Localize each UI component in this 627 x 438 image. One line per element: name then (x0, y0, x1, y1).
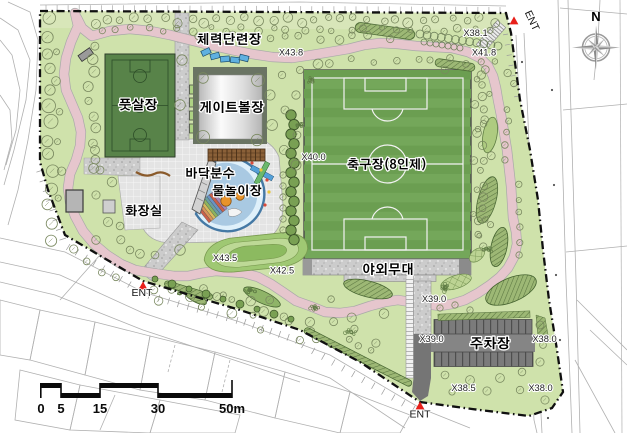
svg-text:X43.8: X43.8 (279, 48, 303, 58)
svg-text:X39.0: X39.0 (422, 294, 446, 304)
svg-text:X40.0: X40.0 (301, 152, 325, 162)
svg-text:50m: 50m (219, 401, 245, 416)
svg-text:X43.5: X43.5 (213, 253, 237, 263)
svg-text:X38.5: X38.5 (451, 383, 475, 393)
svg-text:X41.8: X41.8 (472, 48, 496, 58)
svg-text:15: 15 (93, 401, 107, 416)
svg-text:ENT: ENT (132, 287, 154, 299)
svg-text:N: N (591, 9, 600, 24)
svg-text:0: 0 (37, 401, 44, 416)
svg-text:X38.0: X38.0 (532, 334, 556, 344)
svg-text:X39.0: X39.0 (419, 334, 443, 344)
svg-text:30: 30 (151, 401, 165, 416)
svg-text:5: 5 (57, 401, 64, 416)
svg-text:X38.1: X38.1 (463, 28, 487, 38)
svg-text:X38.0: X38.0 (528, 383, 552, 393)
svg-text:ENT: ENT (410, 409, 432, 421)
svg-text:X42.5: X42.5 (270, 266, 294, 276)
